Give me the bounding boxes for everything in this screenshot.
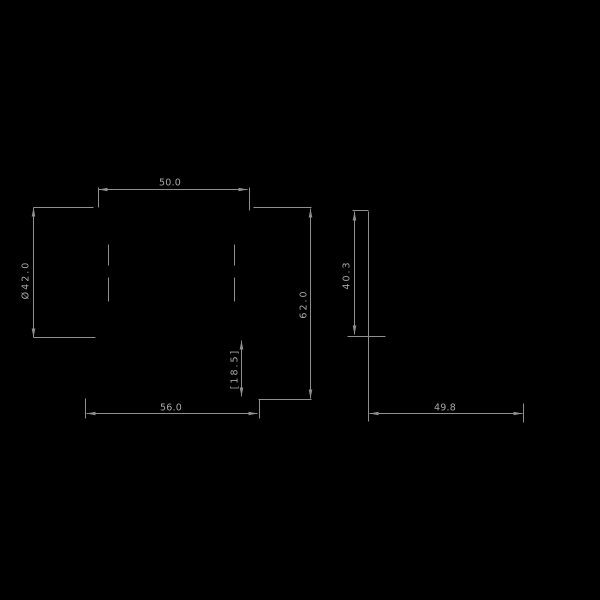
dim-label-dia-42-0: Ø42.0 (21, 261, 32, 300)
arrow-49-8-left (370, 412, 379, 416)
dim-label-40-3: 40.3 (342, 260, 353, 289)
arrow-62-0-bottom (309, 390, 313, 399)
arrow-42-0-top (32, 208, 36, 217)
dimension-arrows-group (32, 188, 523, 416)
dim-label-18-5: [18.5] (230, 349, 241, 390)
arrow-56-0-right (249, 412, 258, 416)
arrow-42-0-bottom (32, 329, 36, 338)
arrow-56-0-left (87, 412, 96, 416)
dimension-labels-group: 50.0Ø42.062.040.3[18.5]56.049.8 (21, 178, 456, 414)
arrow-50-0-right (239, 188, 248, 192)
arrow-18-5-top (240, 341, 244, 350)
dim-label-62-0: 62.0 (299, 289, 310, 318)
dimension-lines-group (34, 188, 524, 423)
arrow-49-8-right (514, 412, 523, 416)
arrow-62-0-top (309, 209, 313, 218)
arrow-50-0-left (99, 188, 108, 192)
arrow-40-3-top (353, 212, 357, 221)
cad-drawing-svg: 50.0Ø42.062.040.3[18.5]56.049.8 (0, 0, 600, 600)
drawing-area: 50.0Ø42.062.040.3[18.5]56.049.8 (0, 0, 600, 600)
dim-label-56-0: 56.0 (160, 403, 182, 414)
arrow-40-3-bottom (353, 326, 357, 335)
dim-label-50-0: 50.0 (159, 178, 181, 189)
dim-label-49-8: 49.8 (434, 403, 456, 414)
